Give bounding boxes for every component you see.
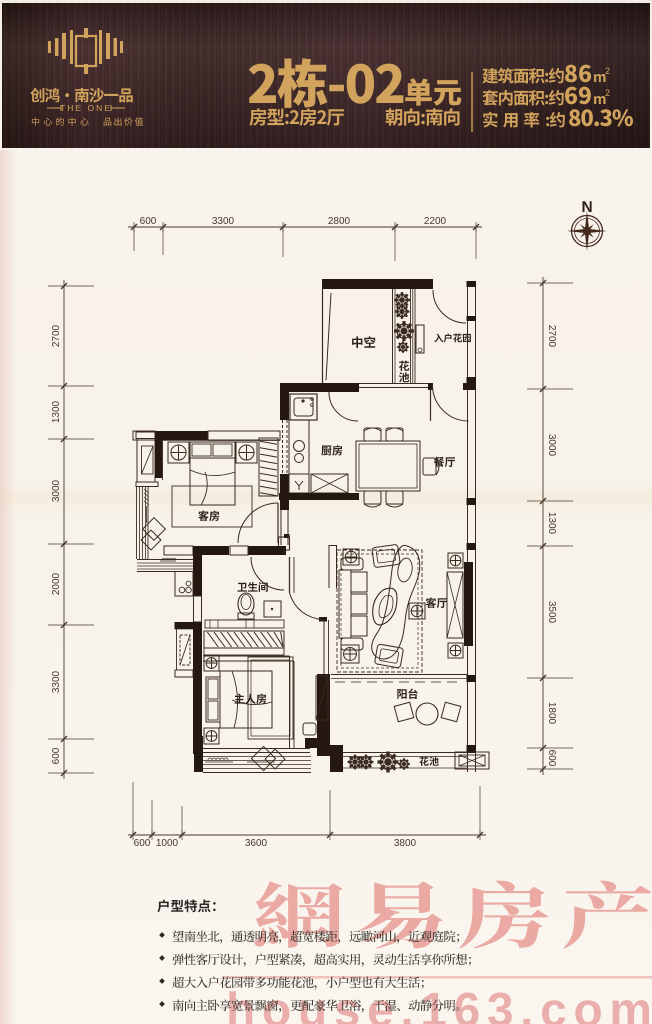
svg-text:2000: 2000 — [51, 572, 62, 595]
svg-text:3000: 3000 — [546, 434, 557, 457]
svg-text:3300: 3300 — [51, 670, 62, 693]
svg-text:3000: 3000 — [51, 479, 62, 502]
svg-text:600: 600 — [546, 750, 557, 767]
svg-text:2800: 2800 — [328, 216, 351, 227]
svg-text:3800: 3800 — [394, 838, 417, 849]
svg-text:2: 2 — [605, 66, 610, 76]
svg-text:2200: 2200 — [424, 216, 447, 227]
svg-text:2700: 2700 — [51, 324, 62, 347]
svg-text:600: 600 — [134, 838, 151, 849]
svg-text:1000: 1000 — [156, 838, 179, 849]
svg-text:THE ONE: THE ONE — [60, 103, 112, 113]
svg-text:1300: 1300 — [546, 512, 557, 535]
svg-text:3500: 3500 — [546, 601, 557, 624]
svg-text:600: 600 — [140, 216, 157, 227]
svg-text:1800: 1800 — [546, 702, 557, 725]
svg-text:3600: 3600 — [245, 838, 268, 849]
svg-text:2: 2 — [605, 88, 610, 98]
svg-text:2700: 2700 — [546, 325, 557, 348]
svg-text:1300: 1300 — [51, 400, 62, 423]
svg-text:600: 600 — [51, 747, 62, 764]
svg-text:3300: 3300 — [212, 216, 235, 227]
